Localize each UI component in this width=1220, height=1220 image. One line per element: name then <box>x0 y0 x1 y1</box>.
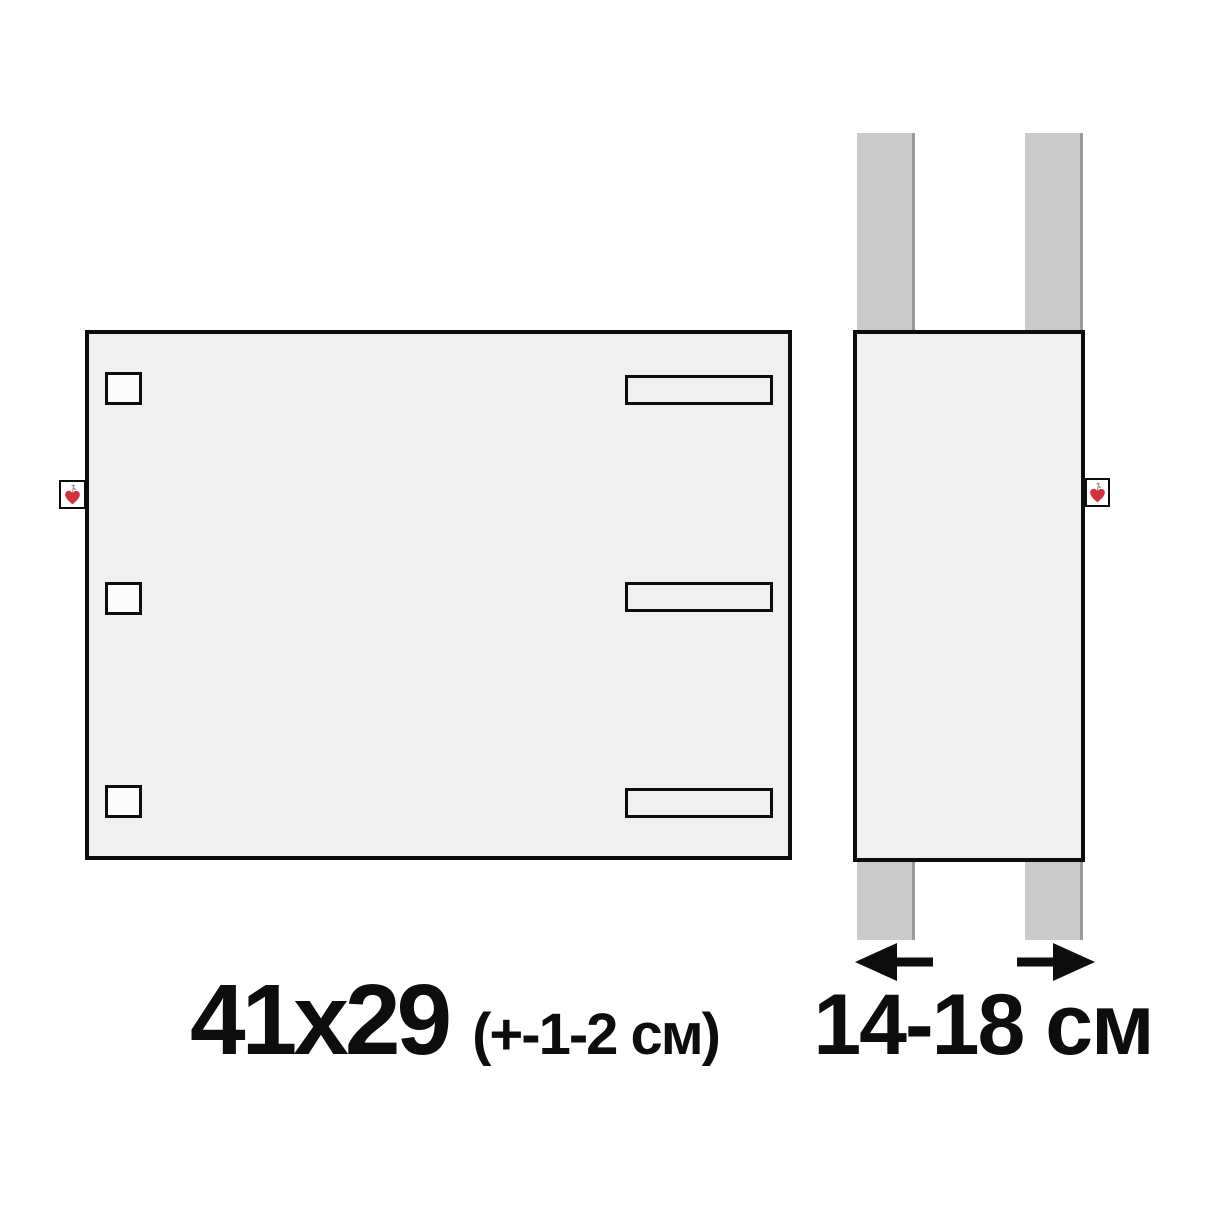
brand-tag-right <box>1085 478 1110 507</box>
brand-tag-left <box>59 480 86 509</box>
button-hole-top <box>105 372 142 405</box>
front-size-label: 41x29 (+-1-2 см) <box>190 970 719 1070</box>
strap-slot-bottom <box>625 788 773 818</box>
button-hole-bottom <box>105 785 142 818</box>
strap-slot-middle <box>625 582 773 612</box>
strap-range-label: 14-18 см <box>813 982 1152 1068</box>
strap-bottom-left <box>857 858 915 940</box>
strap-bottom-right <box>1025 858 1083 940</box>
strap-slot-top <box>625 375 773 405</box>
strap-top-right <box>1025 133 1083 332</box>
dimension-diagram: 41x29 (+-1-2 см) 14-18 см <box>0 0 1220 1220</box>
heart-sprout-icon <box>63 483 82 506</box>
front-size-value: 41x29 <box>190 970 448 1070</box>
button-hole-middle <box>105 582 142 615</box>
side-panel <box>853 330 1085 862</box>
heart-sprout-icon <box>1088 481 1107 504</box>
front-size-tolerance: (+-1-2 см) <box>472 1006 719 1064</box>
arrow-right-icon <box>1017 943 1095 981</box>
arrow-left-icon <box>855 943 933 981</box>
strap-top-left <box>857 133 915 332</box>
front-panel <box>85 330 792 860</box>
